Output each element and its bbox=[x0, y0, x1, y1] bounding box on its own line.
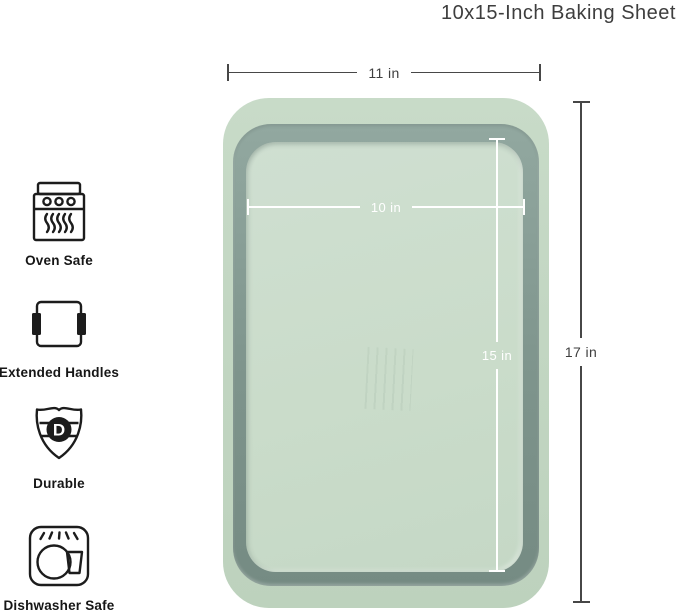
dimension-tick bbox=[489, 570, 505, 572]
dimension-line bbox=[411, 72, 540, 73]
feature-oven-safe: Oven Safe bbox=[0, 181, 118, 268]
inner-length-label: 15 in bbox=[482, 342, 512, 369]
feature-label: Oven Safe bbox=[25, 253, 93, 268]
feature-label: Durable bbox=[33, 476, 85, 491]
embossed-stamp bbox=[364, 347, 413, 411]
dimension-tick bbox=[539, 64, 541, 81]
dimension-line bbox=[496, 140, 497, 342]
outer-length-dimension: 17 in bbox=[573, 101, 590, 603]
durable-shield-icon: D bbox=[31, 402, 87, 462]
shield-letter: D bbox=[53, 421, 65, 440]
dimension-line bbox=[412, 206, 523, 207]
feature-label: Extended Handles bbox=[0, 365, 119, 380]
inner-width-label: 10 in bbox=[360, 200, 412, 215]
dimension-line bbox=[580, 103, 581, 338]
feature-label: Dishwasher Safe bbox=[3, 598, 114, 613]
oven-icon bbox=[28, 181, 90, 243]
product-infographic: 10x15-Inch Baking Sheet 11 in 17 in 10 i… bbox=[0, 0, 679, 614]
dimension-line bbox=[496, 369, 497, 571]
inner-length-dimension: 15 in bbox=[489, 138, 505, 572]
inner-width-dimension: 10 in bbox=[247, 199, 525, 215]
dimension-line bbox=[229, 72, 358, 73]
feature-durable: D Durable bbox=[0, 402, 118, 491]
feature-dishwasher-safe: Dishwasher Safe bbox=[0, 524, 118, 613]
extended-handles-icon bbox=[28, 299, 90, 349]
dimension-tick bbox=[573, 601, 590, 603]
outer-width-label: 11 in bbox=[357, 65, 410, 81]
dimension-line bbox=[249, 206, 360, 207]
outer-width-dimension: 11 in bbox=[227, 64, 541, 81]
dimension-tick bbox=[523, 199, 525, 215]
dimension-line bbox=[580, 366, 581, 601]
outer-length-label: 17 in bbox=[565, 338, 597, 366]
feature-extended-handles: Extended Handles bbox=[0, 299, 118, 380]
page-title: 10x15-Inch Baking Sheet bbox=[441, 0, 676, 27]
dishwasher-icon bbox=[27, 524, 91, 588]
